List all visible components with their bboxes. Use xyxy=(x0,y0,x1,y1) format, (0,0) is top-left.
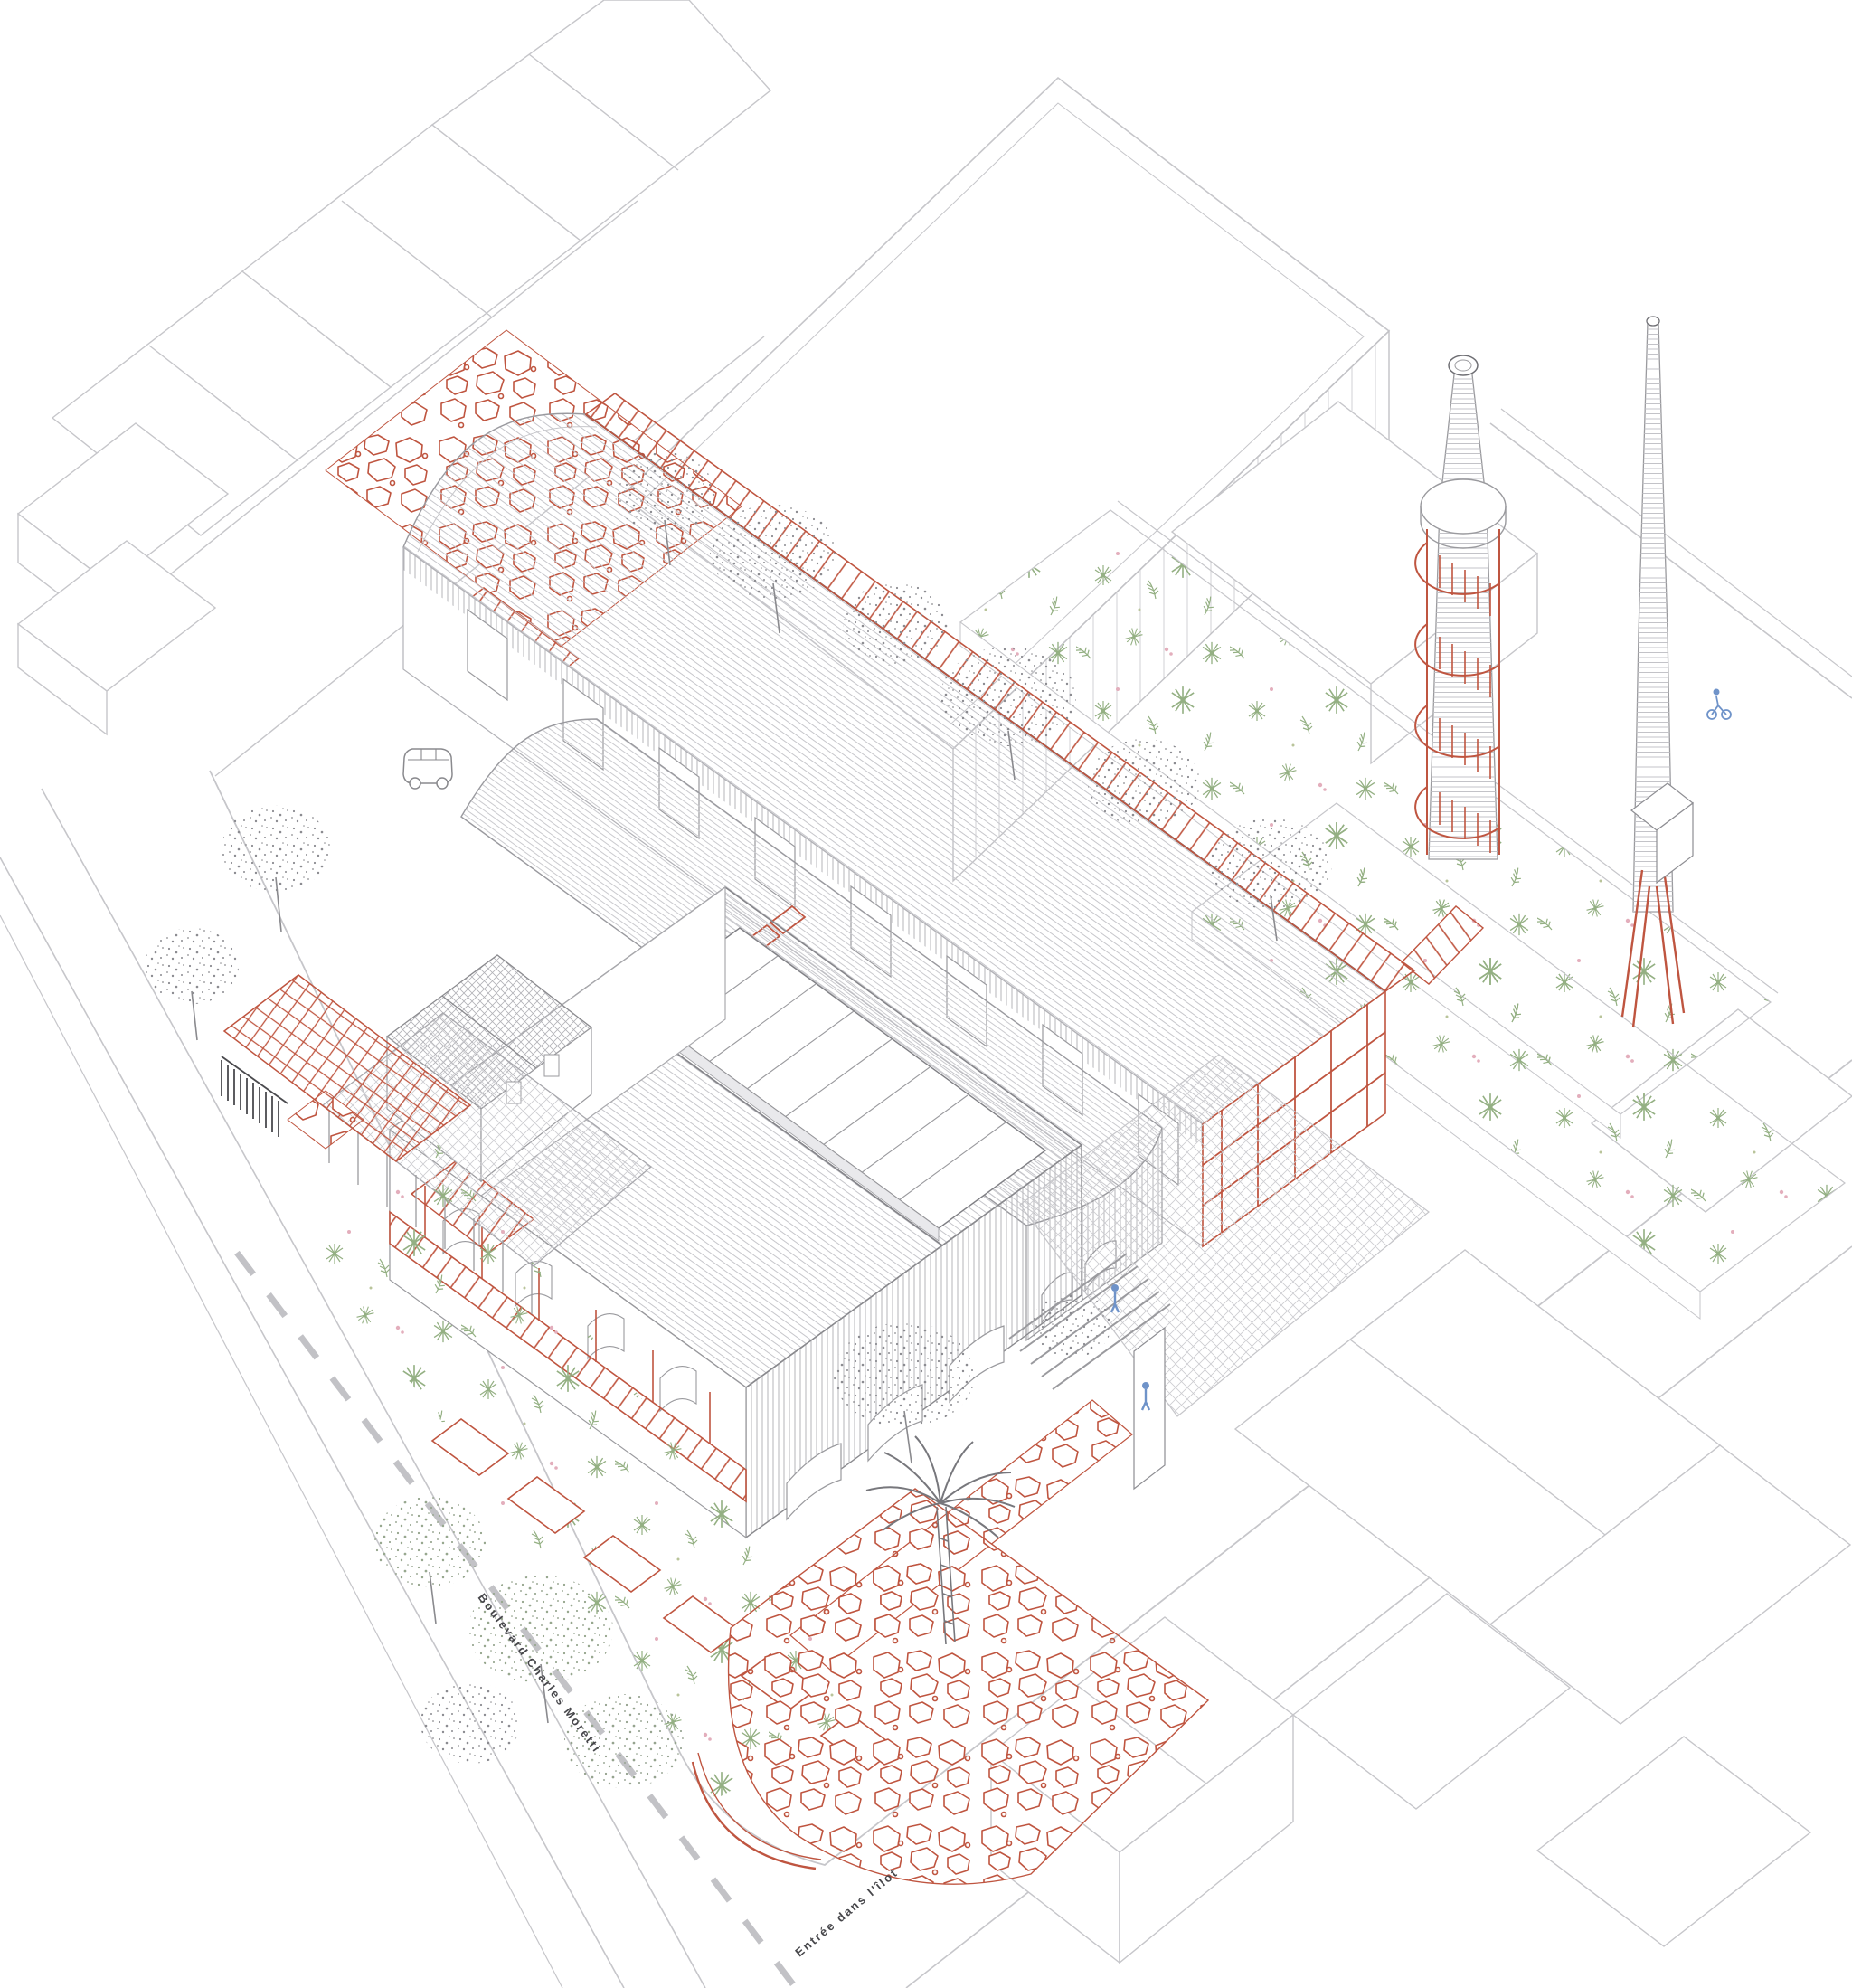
cyclist-icon xyxy=(1707,689,1731,720)
axonometric-site-drawing: Boulevard Charles Moretti Entrée dans l'… xyxy=(0,0,1852,1988)
context-boxes-west xyxy=(18,423,228,734)
parked-van-icon xyxy=(403,749,452,789)
entrance-label: Entrée dans l'îlot xyxy=(792,1865,901,1959)
